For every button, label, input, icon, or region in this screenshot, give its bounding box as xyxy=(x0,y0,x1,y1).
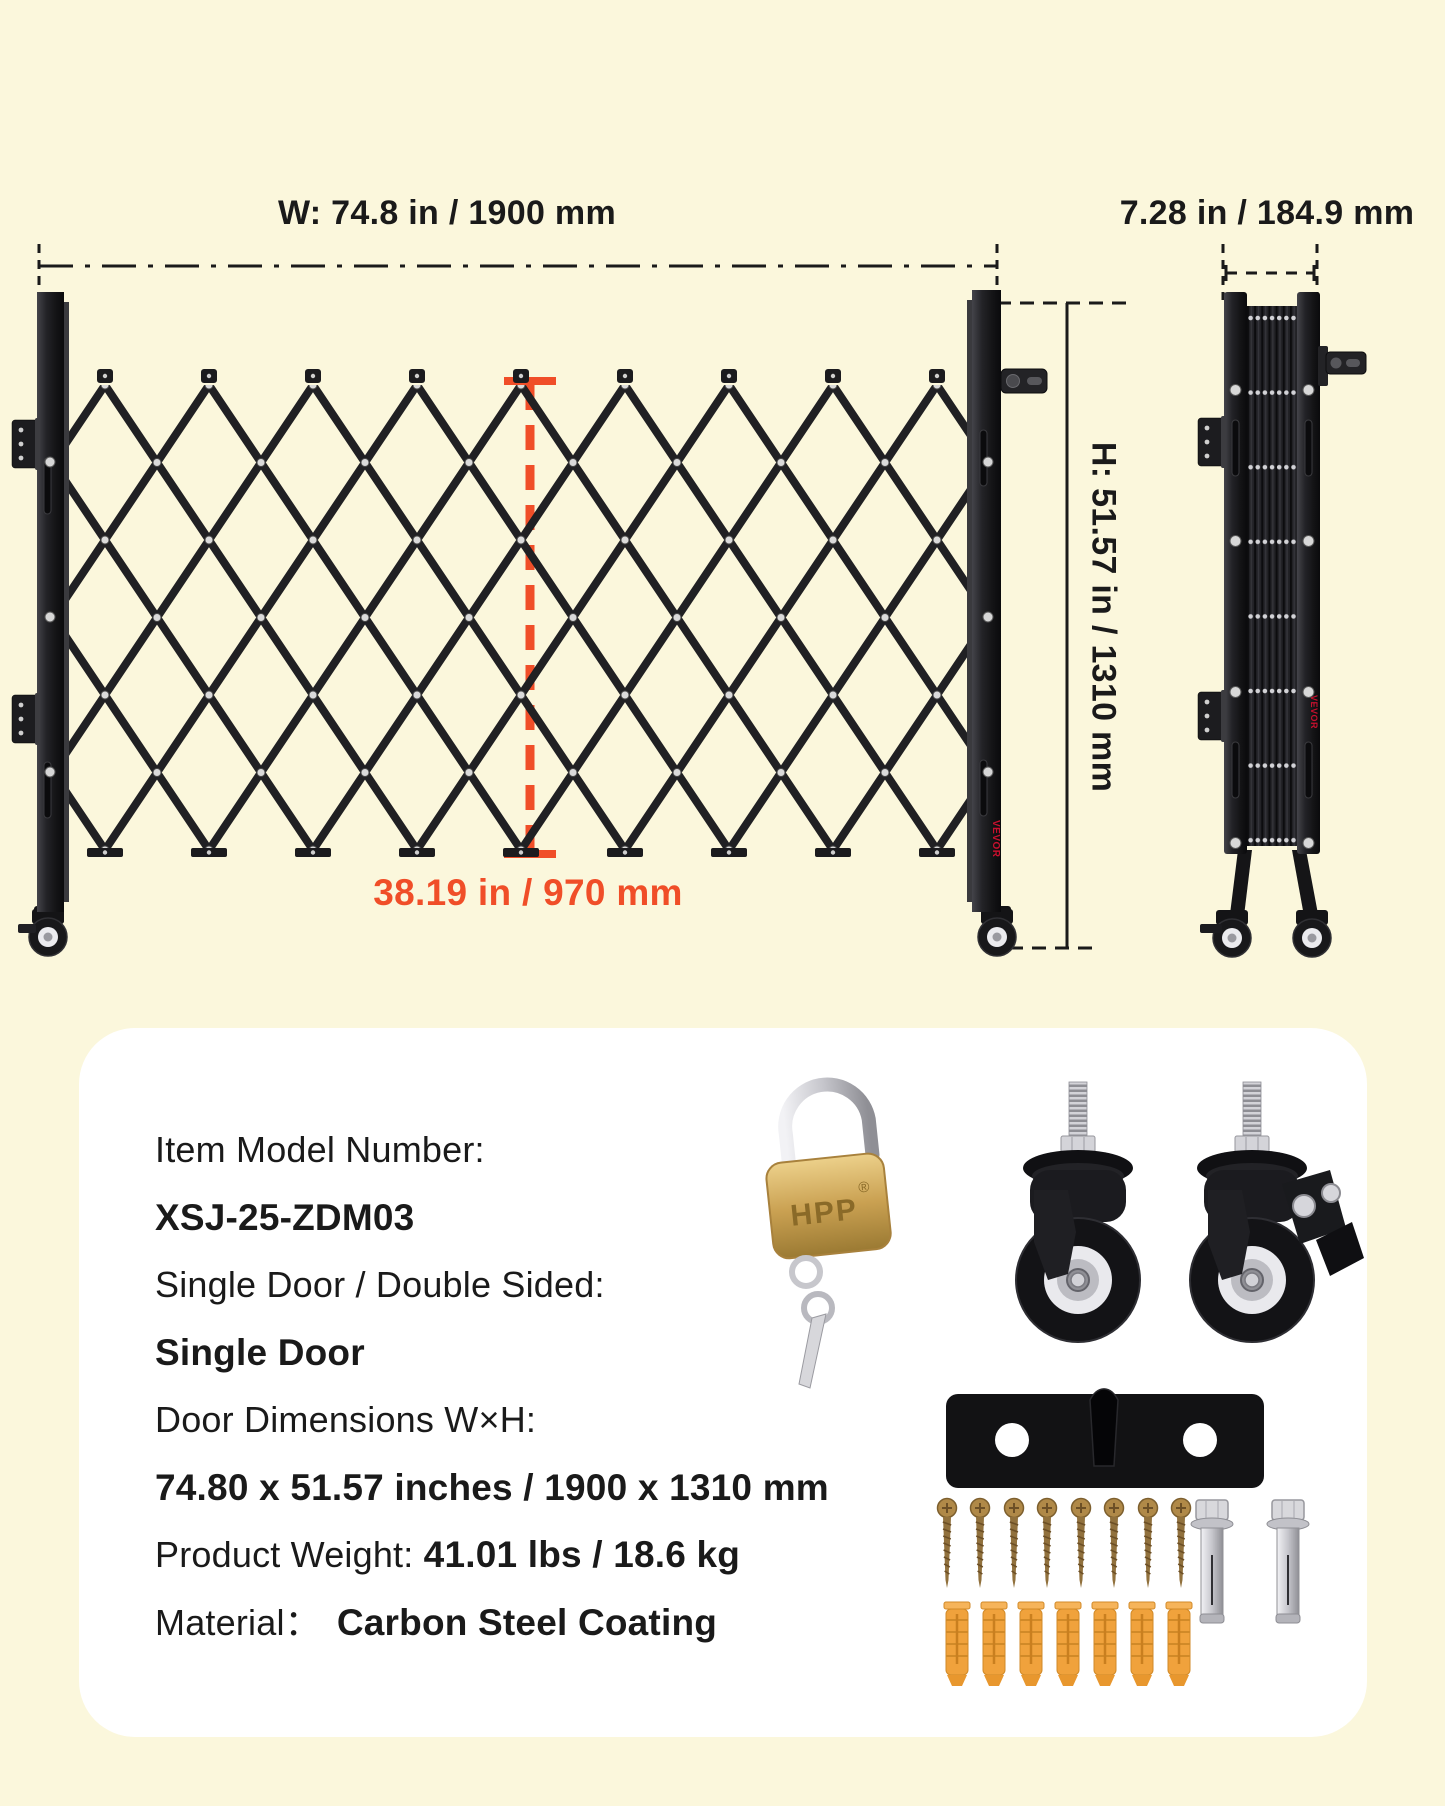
hinge-icon xyxy=(1198,690,1226,742)
vevor-logo: VEVOR xyxy=(1309,695,1319,729)
material-line: Material：Carbon Steel Coating xyxy=(155,1589,829,1657)
height-dimension-label: H: 51.57 in / 1310 mm xyxy=(1084,442,1123,792)
door-dims-value: 74.80 x 51.57 inches / 1900 x 1310 mm xyxy=(155,1454,829,1522)
door-type-label: Single Door / Double Sided: xyxy=(155,1251,829,1319)
wheel-brake-tab xyxy=(1200,924,1222,933)
gate-wheel xyxy=(978,909,1016,956)
gate-wheel xyxy=(29,909,67,956)
wheel-brake-tab xyxy=(18,924,36,933)
hinge-icon xyxy=(12,693,40,745)
vevor-logo: VEVOR xyxy=(990,820,1001,858)
scissor-lattice xyxy=(55,385,980,850)
hinge-icon xyxy=(12,418,40,470)
section-width-dimension-line xyxy=(504,377,556,858)
latch-bracket xyxy=(1318,346,1366,386)
gate-wheel xyxy=(1213,910,1251,957)
material-value: Carbon Steel Coating xyxy=(337,1602,717,1643)
folded-width-dimension-line xyxy=(1223,244,1317,300)
folded-width-dimension-label: 7.28 in / 184.9 mm xyxy=(1072,194,1445,233)
model-value: XSJ-25-ZDM03 xyxy=(155,1184,829,1252)
weight-line: Product Weight: 41.01 lbs / 18.6 kg xyxy=(155,1521,829,1589)
width-dimension-line xyxy=(39,244,997,292)
door-dims-label: Door Dimensions W×H: xyxy=(155,1386,829,1454)
model-label: Item Model Number: xyxy=(155,1116,829,1184)
section-width-dimension-label: 38.19 in / 970 mm xyxy=(328,872,728,914)
weight-label: Product Weight: xyxy=(155,1534,424,1575)
width-dimension-label: W: 74.8 in / 1900 mm xyxy=(147,194,747,233)
left-gate-post xyxy=(37,292,64,912)
material-label: Material： xyxy=(155,1602,321,1643)
door-type-value: Single Door xyxy=(155,1319,829,1387)
expanded-gate: VEVOR xyxy=(12,290,1047,956)
folded-pleats xyxy=(1247,306,1297,846)
folded-gate: VEVOR xyxy=(1198,292,1366,957)
latch-bracket xyxy=(1001,369,1047,393)
spec-list: Item Model Number: XSJ-25-ZDM03 Single D… xyxy=(155,1116,829,1656)
weight-value: 41.01 lbs / 18.6 kg xyxy=(424,1534,740,1575)
right-gate-post xyxy=(972,290,1001,912)
spec-card: Item Model Number: XSJ-25-ZDM03 Single D… xyxy=(79,1028,1367,1737)
folded-left-rail xyxy=(1224,292,1247,854)
product-infographic: Item Model Number: XSJ-25-ZDM03 Single D… xyxy=(0,0,1445,1806)
hinge-icon xyxy=(1198,416,1226,468)
folded-right-rail xyxy=(1297,292,1320,854)
gate-wheel xyxy=(1293,910,1331,957)
